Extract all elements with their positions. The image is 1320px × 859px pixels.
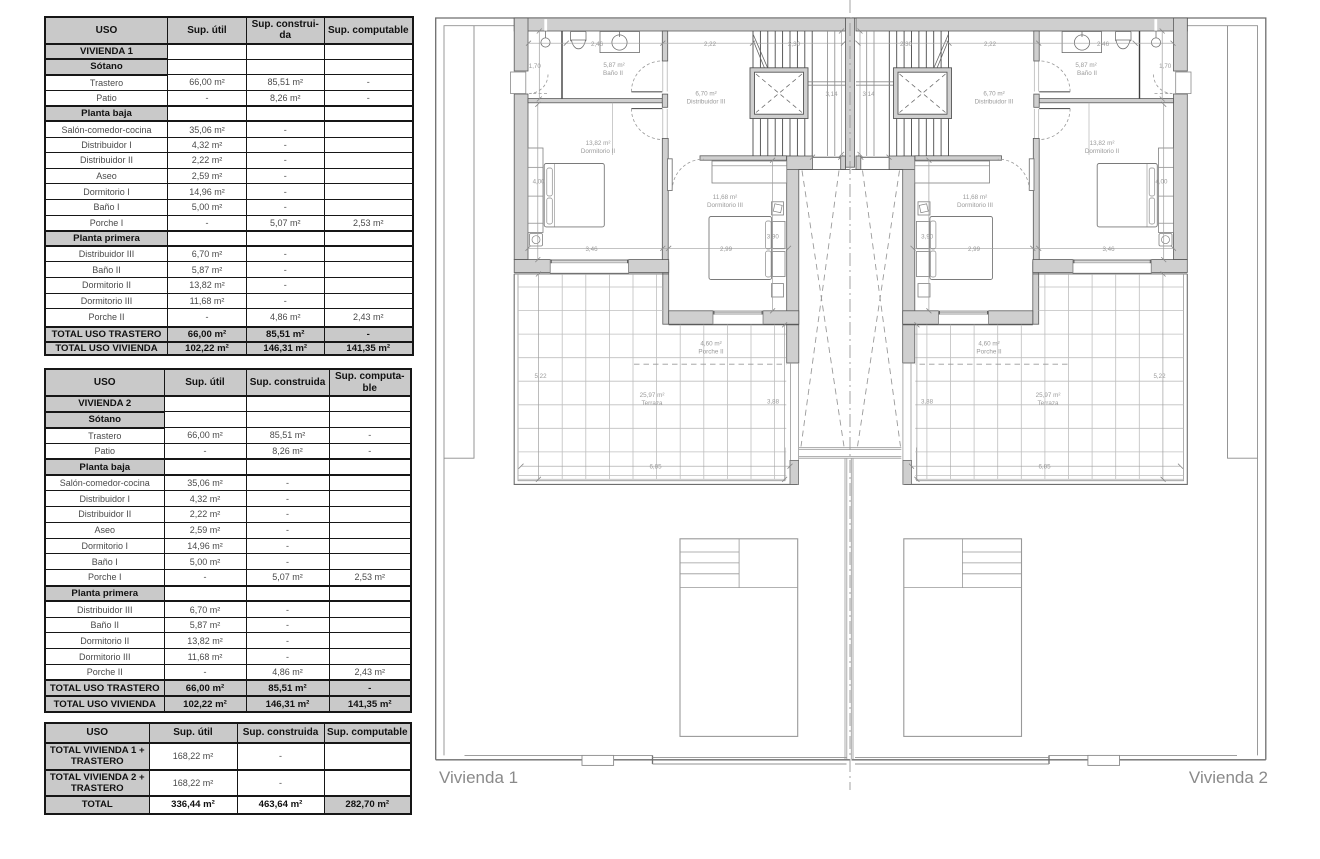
- svg-text:4,00: 4,00: [533, 179, 546, 186]
- svg-text:3,14: 3,14: [825, 91, 838, 98]
- svg-text:Terraza: Terraza: [642, 400, 663, 407]
- svg-text:6,85: 6,85: [1038, 464, 1051, 471]
- svg-text:25,97 m²: 25,97 m²: [640, 392, 665, 399]
- svg-text:Baño II: Baño II: [603, 70, 623, 77]
- svg-text:Distribuidor III: Distribuidor III: [975, 99, 1014, 106]
- svg-text:Distribuidor III: Distribuidor III: [687, 99, 726, 106]
- svg-text:13,82 m²: 13,82 m²: [586, 140, 611, 147]
- svg-text:13,82 m²: 13,82 m²: [1090, 140, 1115, 147]
- svg-text:3,46: 3,46: [585, 246, 598, 253]
- svg-text:Dormitorio III: Dormitorio III: [707, 202, 743, 209]
- svg-text:Terraza: Terraza: [1038, 400, 1059, 407]
- svg-text:5,22: 5,22: [1153, 373, 1166, 380]
- svg-text:4,00: 4,00: [1155, 179, 1168, 186]
- svg-text:3,88: 3,88: [921, 399, 934, 406]
- svg-text:2,30: 2,30: [900, 41, 913, 48]
- svg-text:Baño II: Baño II: [1077, 70, 1097, 77]
- svg-text:11,68 m²: 11,68 m²: [963, 194, 987, 201]
- svg-text:4,60 m²: 4,60 m²: [978, 341, 999, 348]
- svg-text:2,22: 2,22: [984, 41, 997, 48]
- svg-text:1,70: 1,70: [529, 63, 542, 70]
- svg-text:5,87 m²: 5,87 m²: [1075, 62, 1096, 69]
- svg-text:3,90: 3,90: [767, 234, 780, 241]
- svg-text:3,46: 3,46: [1102, 246, 1115, 253]
- svg-text:4,60 m²: 4,60 m²: [700, 341, 721, 348]
- svg-text:2,99: 2,99: [968, 246, 981, 253]
- svg-text:11,68 m²: 11,68 m²: [713, 194, 737, 201]
- svg-text:3,88: 3,88: [767, 399, 780, 406]
- svg-text:Vivienda 2: Vivienda 2: [1189, 768, 1268, 787]
- svg-text:Dormitorio II: Dormitorio II: [1085, 148, 1120, 155]
- svg-text:25,97 m²: 25,97 m²: [1036, 392, 1061, 399]
- svg-text:2,30: 2,30: [788, 41, 801, 48]
- svg-text:Dormitorio III: Dormitorio III: [957, 202, 993, 209]
- svg-text:5,87 m²: 5,87 m²: [603, 62, 624, 69]
- svg-text:6,70 m²: 6,70 m²: [695, 91, 716, 98]
- svg-text:Porche II: Porche II: [976, 349, 1001, 356]
- svg-text:1,70: 1,70: [1159, 63, 1172, 70]
- svg-text:2,46: 2,46: [591, 41, 604, 48]
- svg-text:5,22: 5,22: [534, 373, 547, 380]
- svg-text:3,90: 3,90: [921, 234, 934, 241]
- svg-text:2,99: 2,99: [720, 246, 733, 253]
- svg-text:Dormitorio II: Dormitorio II: [581, 148, 616, 155]
- svg-text:6,85: 6,85: [649, 464, 662, 471]
- svg-text:Vivienda 1: Vivienda 1: [439, 768, 518, 787]
- svg-text:6,70 m²: 6,70 m²: [983, 91, 1004, 98]
- svg-text:3,14: 3,14: [862, 91, 875, 98]
- svg-text:2,22: 2,22: [704, 41, 717, 48]
- svg-text:2,46: 2,46: [1097, 41, 1110, 48]
- svg-text:Porche II: Porche II: [698, 349, 723, 356]
